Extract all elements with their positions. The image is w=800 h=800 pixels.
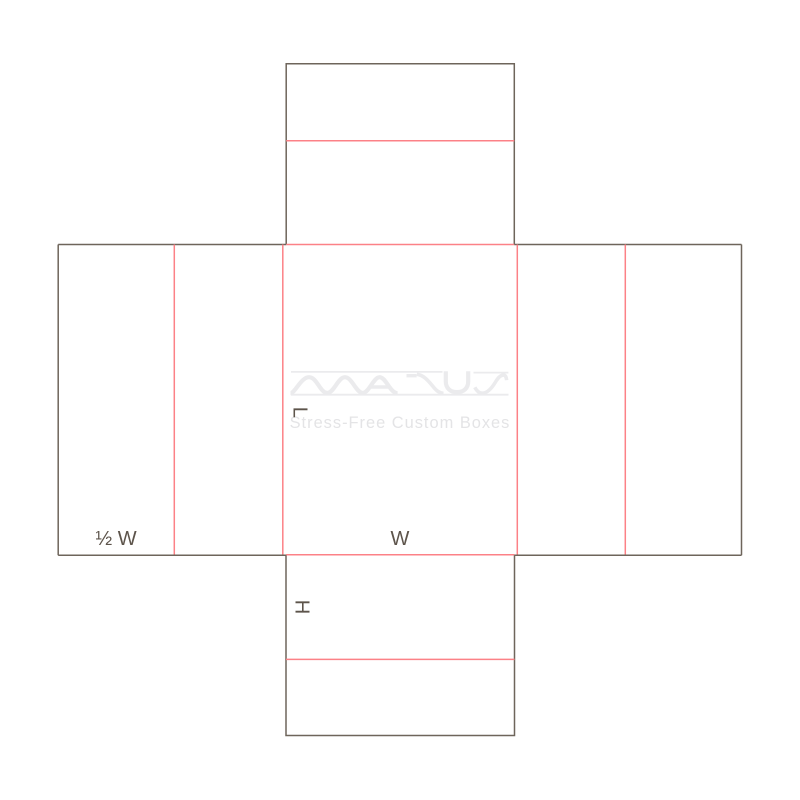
svg-text:H: H xyxy=(291,600,313,614)
svg-text:L: L xyxy=(288,407,310,418)
svg-text:Stress-Free Custom Boxes: Stress-Free Custom Boxes xyxy=(290,414,511,432)
svg-text:W: W xyxy=(391,528,410,550)
svg-text:½ W: ½ W xyxy=(96,528,137,550)
